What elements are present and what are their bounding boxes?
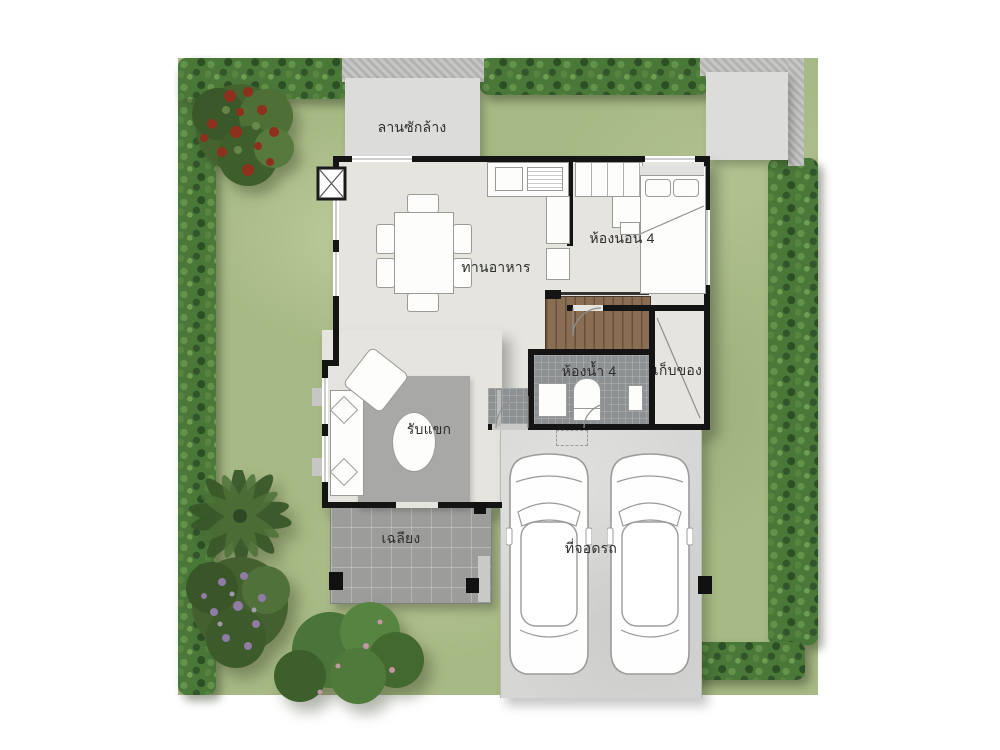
label-bathroom-4: ห้องน้ำ 4 — [562, 361, 617, 383]
washing-machine-box — [318, 168, 345, 199]
entry-door-arc — [496, 396, 528, 428]
label-washing-area: ลานซักล้าง — [378, 117, 447, 139]
detail-lines — [0, 0, 1000, 750]
bedroom-door-arc — [573, 308, 601, 336]
label-dining-room: ทานอาหาร — [461, 257, 530, 279]
bathroom-door-arc — [584, 404, 608, 428]
floor-plan-canvas: ลานซักล้าง ทานอาหาร ห้องนอน 4 ห้องน้ำ 4 … — [0, 0, 1000, 750]
label-parking: ที่จอดรถ — [565, 538, 617, 560]
label-porch: เฉลียง — [382, 528, 421, 550]
label-living-room: รับแขก — [407, 419, 451, 441]
label-storage-room: เก็บของ — [654, 360, 702, 382]
label-bedroom-4: ห้องนอน 4 — [589, 228, 654, 250]
